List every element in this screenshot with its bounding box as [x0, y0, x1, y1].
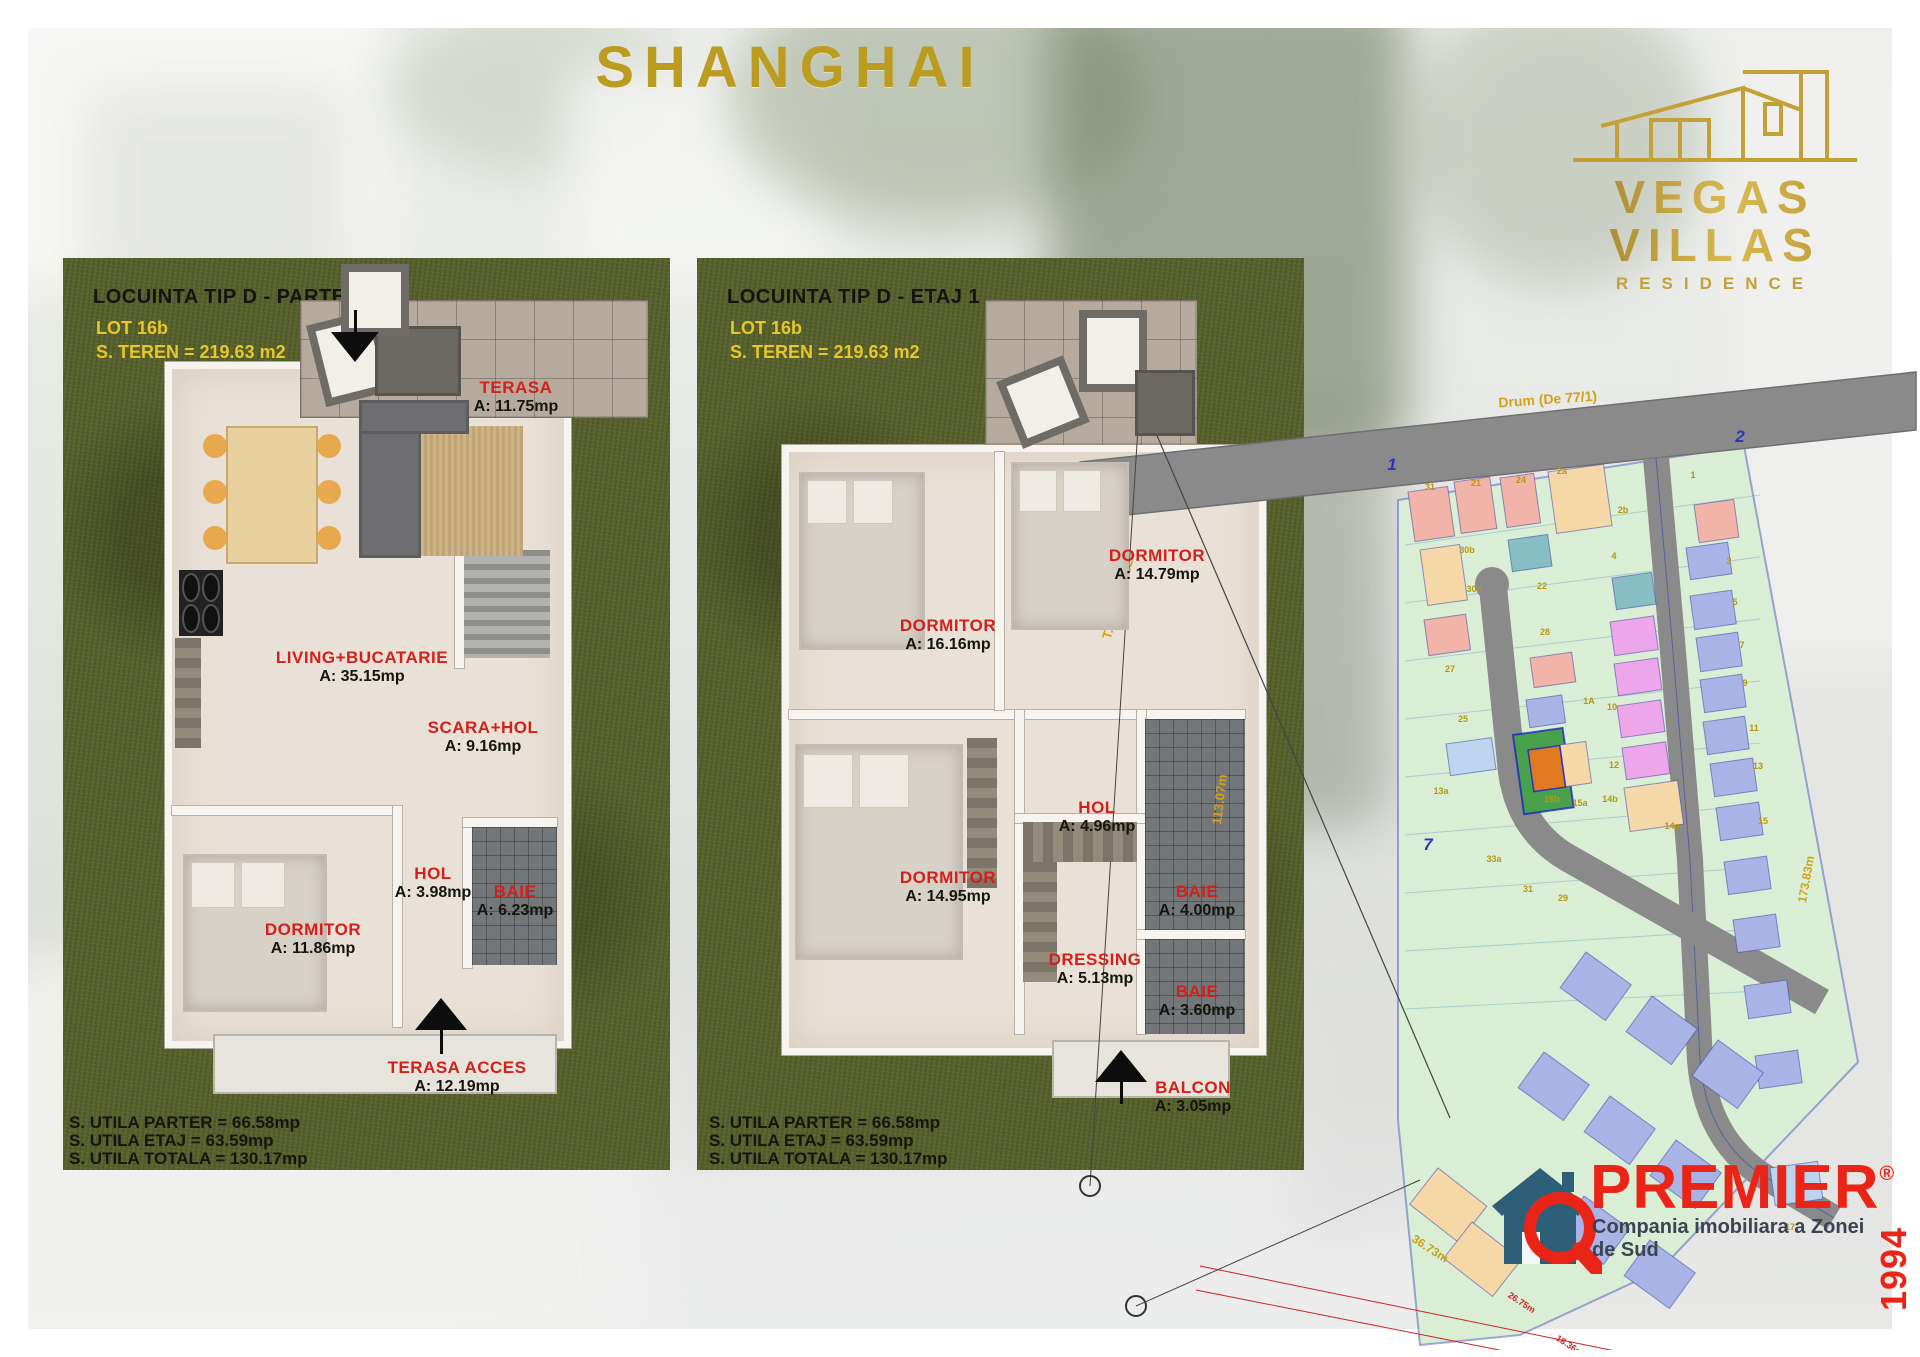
- lot-number: 22: [1537, 581, 1547, 591]
- lot-number: 1: [1690, 470, 1695, 480]
- pillow: [853, 480, 893, 524]
- dining-table: [226, 426, 318, 564]
- room-label-hol: HOL A: 3.98mp: [395, 864, 471, 902]
- floorplan-parter-panel: LOCUINTA TIP D - PARTER LOT 16b S. TEREN…: [63, 258, 670, 1170]
- wall: [455, 548, 464, 668]
- lot-number: 29: [1558, 893, 1568, 903]
- dining-chair: [317, 480, 341, 504]
- plan-parter-summary: S. UTILA PARTER = 66.58mp S. UTILA ETAJ …: [69, 1114, 308, 1168]
- room-label-dormitor-2: DORMITOR A: 16.16mp: [900, 616, 996, 654]
- dining-chair: [203, 480, 227, 504]
- lot-number: 7: [1739, 640, 1744, 650]
- sofa: [359, 418, 421, 558]
- lot-number: 9: [1742, 678, 1747, 688]
- house-magnifier-icon: [1482, 1154, 1602, 1274]
- site-house: [1526, 695, 1566, 728]
- pillow: [1019, 470, 1057, 512]
- sofa: [359, 400, 469, 434]
- room-label-dormitor-3: DORMITOR A: 14.95mp: [900, 868, 996, 906]
- site-house: [1716, 802, 1763, 841]
- kitchen-counter: [175, 638, 201, 748]
- wall: [393, 806, 402, 1027]
- lot-number: 33a: [1486, 854, 1502, 864]
- registered-mark: ®: [1879, 1163, 1895, 1185]
- lot-number: 5: [1732, 597, 1737, 607]
- premier-year: 1994: [1873, 1227, 1915, 1311]
- page-title: SHANGHAI: [480, 34, 1100, 101]
- lot-number: 3: [1726, 556, 1731, 566]
- site-house: [1610, 616, 1658, 656]
- dining-chair: [203, 526, 227, 550]
- outdoor-table: [1135, 370, 1195, 436]
- lot-number: 4: [1611, 551, 1616, 561]
- highlighted-house-16b: [1528, 746, 1566, 792]
- room-label-dressing: DRESSING A: 5.13mp: [1049, 950, 1142, 988]
- site-house: [1612, 572, 1656, 609]
- wall: [463, 818, 557, 827]
- premier-tagline: Compania imobiliara a Zonei de Sud: [1592, 1216, 1882, 1262]
- site-house: [1408, 486, 1455, 541]
- site-house: [1508, 534, 1552, 571]
- outdoor-table: [375, 326, 461, 396]
- site-house: [1694, 499, 1739, 542]
- dining-chair: [317, 526, 341, 550]
- premier-name: PREMIER®: [1590, 1152, 1895, 1223]
- room-label-dormitor: DORMITOR A: 11.86mp: [265, 920, 361, 958]
- site-house: [1733, 914, 1780, 953]
- dimension-label: 18.36m: [1554, 1333, 1585, 1350]
- terasa-acces-stem: [440, 1030, 443, 1054]
- lot-number: 11: [1749, 723, 1759, 733]
- villas-word: VILLAS: [1555, 221, 1875, 269]
- site-house: [1617, 700, 1665, 738]
- vegas-villas-logo: VEGAS VILLAS RESIDENCE: [1555, 48, 1875, 294]
- pillow: [191, 862, 235, 908]
- site-house: [1755, 1050, 1802, 1089]
- room-label-living: LIVING+BUCATARIE A: 35.15mp: [276, 648, 448, 686]
- pillow: [803, 754, 853, 808]
- entry-stem: [354, 310, 357, 334]
- site-house: [1446, 738, 1496, 776]
- plan-parter-lot: LOT 16b: [96, 318, 168, 339]
- lot-number: 14b: [1602, 794, 1618, 804]
- vegas-word: VEGAS: [1555, 173, 1875, 221]
- lot-number: 21: [1471, 478, 1481, 488]
- balcony-stem: [1120, 1082, 1123, 1104]
- room-label-terasa-acces: TERASA ACCES A: 12.19mp: [388, 1058, 527, 1096]
- lot-number: 2a: [1557, 466, 1568, 476]
- lot-number: 15a: [1572, 798, 1588, 808]
- dining-chair: [203, 434, 227, 458]
- site-house: [1530, 652, 1576, 688]
- rug: [415, 426, 523, 556]
- page: SHANGHAI VEGAS VILLAS RESIDENCE LOCUINTA…: [0, 0, 1920, 1357]
- pillow: [241, 862, 285, 908]
- pillow: [807, 480, 847, 524]
- site-house: [1703, 716, 1749, 755]
- room-label-baie-1: BAIE A: 4.00mp: [1159, 882, 1235, 920]
- wall: [995, 452, 1004, 710]
- site-house: [1424, 614, 1471, 655]
- lot-number: 14a: [1664, 821, 1680, 831]
- site-house: [1700, 674, 1746, 713]
- premier-logo: PREMIER® Compania imobiliara a Zonei de …: [1482, 1152, 1882, 1302]
- lot-number: 31: [1425, 482, 1435, 492]
- site-house: [1724, 856, 1771, 895]
- stairs: [464, 550, 550, 658]
- residence-word: RESIDENCE: [1555, 274, 1875, 294]
- balcony-arrow: [1095, 1050, 1147, 1082]
- lot-number: 31: [1523, 884, 1533, 894]
- lot-number: 13a: [1433, 786, 1449, 796]
- lot-number: 1A: [1583, 696, 1595, 706]
- kitchen-hob: [179, 570, 223, 636]
- lot-number: 27: [1445, 664, 1455, 674]
- plan-etaj-title: LOCUINTA TIP D - ETAJ 1: [727, 286, 980, 309]
- wall: [172, 806, 400, 815]
- plan-etaj-lot: LOT 16b: [730, 318, 802, 339]
- site-house: [1696, 632, 1742, 672]
- lot-number: 28: [1540, 627, 1550, 637]
- site-house: [1622, 742, 1670, 780]
- pillow: [1063, 470, 1101, 512]
- lot-number: 13: [1753, 761, 1763, 771]
- dimension-label: 113.07m: [1209, 773, 1230, 825]
- site-house: [1614, 658, 1662, 696]
- lot-number: 24: [1516, 475, 1526, 485]
- lot-number: 2b: [1618, 505, 1629, 515]
- plan-etaj-summary: S. UTILA PARTER = 66.58mp S. UTILA ETAJ …: [709, 1114, 948, 1168]
- room-label-baie: BAIE A: 6.23mp: [477, 882, 553, 920]
- point-marker: 2: [1734, 427, 1745, 446]
- lot-number: 12: [1609, 760, 1619, 770]
- plan-parter-teren: S. TEREN = 219.63 m2: [96, 342, 286, 363]
- room-label-terasa: TERASA A: 11.75mp: [474, 378, 558, 416]
- site-house: [1710, 758, 1757, 797]
- pillow: [859, 754, 909, 808]
- house-outline-icon: [1565, 48, 1865, 168]
- room-label-dormitor-1: DORMITOR A: 14.79mp: [1109, 546, 1205, 584]
- wardrobe: [967, 738, 997, 888]
- lot-number: 30b: [1459, 545, 1475, 555]
- lot-number: 16b: [1544, 794, 1560, 804]
- site-house: [1686, 542, 1732, 580]
- lot-number: 10: [1607, 702, 1617, 712]
- room-label-baie-2: BAIE A: 3.60mp: [1159, 982, 1235, 1020]
- point-marker: 7: [1423, 835, 1434, 854]
- room-label-scara-hol: SCARA+HOL A: 9.16mp: [428, 718, 539, 756]
- point-marker: 1: [1387, 455, 1396, 474]
- terasa-entry-arrow: [331, 332, 379, 362]
- room-label-balcon: BALCON A: 3.05mp: [1155, 1078, 1231, 1116]
- lot-number: 15: [1758, 816, 1768, 826]
- dining-chair: [317, 434, 341, 458]
- lot-number: 25: [1458, 714, 1468, 724]
- plan-etaj-teren: S. TEREN = 219.63 m2: [730, 342, 920, 363]
- road-label: Drum (De 77/1): [1498, 388, 1598, 411]
- terasa-acces-arrow: [415, 998, 467, 1030]
- lot-number: 30a: [1466, 584, 1482, 594]
- site-house: [1690, 590, 1736, 630]
- room-label-hol: HOL A: 4.96mp: [1059, 798, 1135, 836]
- lounger: [341, 264, 409, 336]
- site-house: [1744, 980, 1791, 1019]
